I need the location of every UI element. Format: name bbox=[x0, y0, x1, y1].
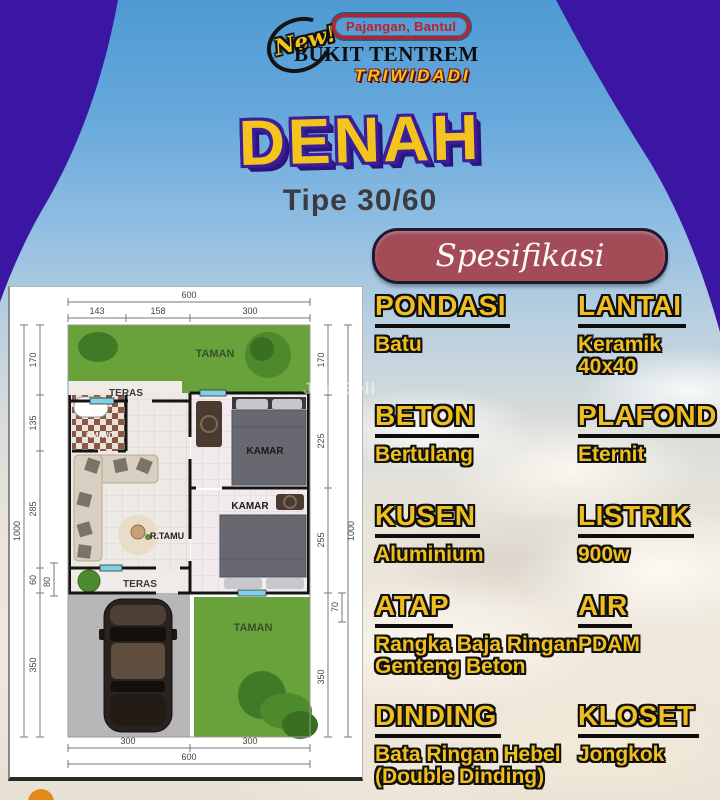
location-badge: Pajangan, Bantul bbox=[332, 14, 470, 39]
spec-item-dinding: DINDING Bata Ringan Hebel (Double Dindin… bbox=[375, 702, 590, 788]
dim-label: 1000 bbox=[12, 521, 22, 541]
garden-bottom bbox=[194, 597, 318, 739]
dim-label: 300 bbox=[120, 736, 135, 746]
spec-item-beton: BETON Bertulang bbox=[375, 402, 479, 466]
spec-item-air: AIR PDAM bbox=[578, 592, 640, 656]
spec-value: Eternit bbox=[578, 444, 703, 466]
dim-label: 285 bbox=[28, 501, 38, 516]
dim-label: 70 bbox=[330, 602, 340, 612]
brand-location: TRIWIDADI bbox=[354, 66, 471, 86]
dim-label: 1000 bbox=[346, 521, 356, 541]
spec-value: Jongkok bbox=[578, 744, 699, 766]
dim-label: 350 bbox=[316, 669, 326, 684]
rug-1 bbox=[196, 401, 222, 447]
room-label: TERAS bbox=[109, 388, 143, 399]
room-label: KM/WC bbox=[86, 431, 114, 440]
spec-value: Batu bbox=[375, 334, 510, 356]
dim-label: 80 bbox=[42, 577, 52, 587]
room-label: TERAS bbox=[123, 579, 157, 590]
spec-term: BETON bbox=[375, 402, 479, 438]
room-label: KAMAR bbox=[231, 501, 269, 512]
room-label: R.TAMU bbox=[150, 531, 184, 541]
dim-label: 600 bbox=[181, 752, 196, 762]
spec-item-plafond: PLAFOND Eternit bbox=[578, 402, 720, 466]
spec-item-kloset: KLOSET Jongkok bbox=[578, 702, 699, 766]
spec-term: KLOSET bbox=[578, 702, 699, 738]
page-subtitle: Tipe 30/60 bbox=[0, 184, 720, 218]
flyer-canvas: New! Pajangan, Bantul BUKIT TENTREM TRIW… bbox=[0, 0, 720, 800]
shrub-icon bbox=[78, 570, 100, 592]
spec-value: Keramik 40x40 bbox=[578, 334, 703, 378]
spec-item-listrik: LISTRIK 900w bbox=[578, 502, 694, 566]
bed-1 bbox=[232, 397, 306, 485]
spec-item-pondasi: PONDASI Batu bbox=[375, 292, 510, 356]
floorplan-drawing: TAMAN TERAS KM/WC KAMAR R.TAMU KAMAR TER… bbox=[10, 287, 362, 774]
spec-term: DINDING bbox=[375, 702, 501, 738]
room-label: KAMAR bbox=[246, 446, 284, 457]
dim-label: 158 bbox=[150, 306, 165, 316]
brand-logo: New! Pajangan, Bantul BUKIT TENTREM TRIW… bbox=[260, 10, 490, 94]
spec-item-lantai: LANTAI Keramik 40x40 bbox=[578, 292, 703, 378]
window-icon bbox=[200, 390, 226, 396]
spec-term: AIR bbox=[578, 592, 632, 628]
dim-label: 60 bbox=[28, 575, 38, 585]
spec-term: PONDASI bbox=[375, 292, 510, 328]
spec-term: LISTRIK bbox=[578, 502, 694, 538]
spec-heading: Spesifikasi bbox=[435, 238, 604, 274]
room-label: TAMAN bbox=[196, 348, 235, 360]
car bbox=[99, 599, 177, 732]
spec-item-atap: ATAP Rangka Baja Ringan Genteng Beton bbox=[375, 592, 590, 678]
dim-label: 350 bbox=[28, 657, 38, 672]
spec-term: LANTAI bbox=[578, 292, 686, 328]
spec-value: Bata Ringan Hebel (Double Dinding) bbox=[375, 744, 590, 788]
dim-label: 300 bbox=[242, 736, 257, 746]
spec-term: KUSEN bbox=[375, 502, 480, 538]
dim-label: 255 bbox=[316, 532, 326, 547]
dim-label: 135 bbox=[28, 415, 38, 430]
spec-term: PLAFOND bbox=[578, 402, 720, 438]
dim-label: 170 bbox=[316, 352, 326, 367]
dim-label: 225 bbox=[316, 433, 326, 448]
window-icon bbox=[238, 590, 266, 596]
dim-label: 600 bbox=[181, 290, 196, 300]
window-icon bbox=[100, 565, 122, 571]
room-label: TAMAN bbox=[234, 622, 273, 634]
spec-value: Rangka Baja Ringan Genteng Beton bbox=[375, 634, 590, 678]
dim-label: 300 bbox=[242, 306, 257, 316]
spec-heading-banner: Spesifikasi bbox=[372, 228, 668, 284]
spec-value: Bertulang bbox=[375, 444, 479, 466]
spec-value: 900w bbox=[578, 544, 694, 566]
spec-item-kusen: KUSEN Aluminium bbox=[375, 502, 484, 566]
spec-value: PDAM bbox=[578, 634, 640, 656]
spec-value: Aluminium bbox=[375, 544, 484, 566]
dim-label: 143 bbox=[89, 306, 104, 316]
floorplan-panel: TAMAN TERAS KM/WC KAMAR R.TAMU KAMAR TER… bbox=[8, 286, 363, 781]
brand-name: BUKIT TENTREM bbox=[294, 42, 479, 67]
dim-label: 170 bbox=[28, 352, 38, 367]
spec-term: ATAP bbox=[375, 592, 453, 628]
bedroom-1 bbox=[191, 393, 309, 488]
